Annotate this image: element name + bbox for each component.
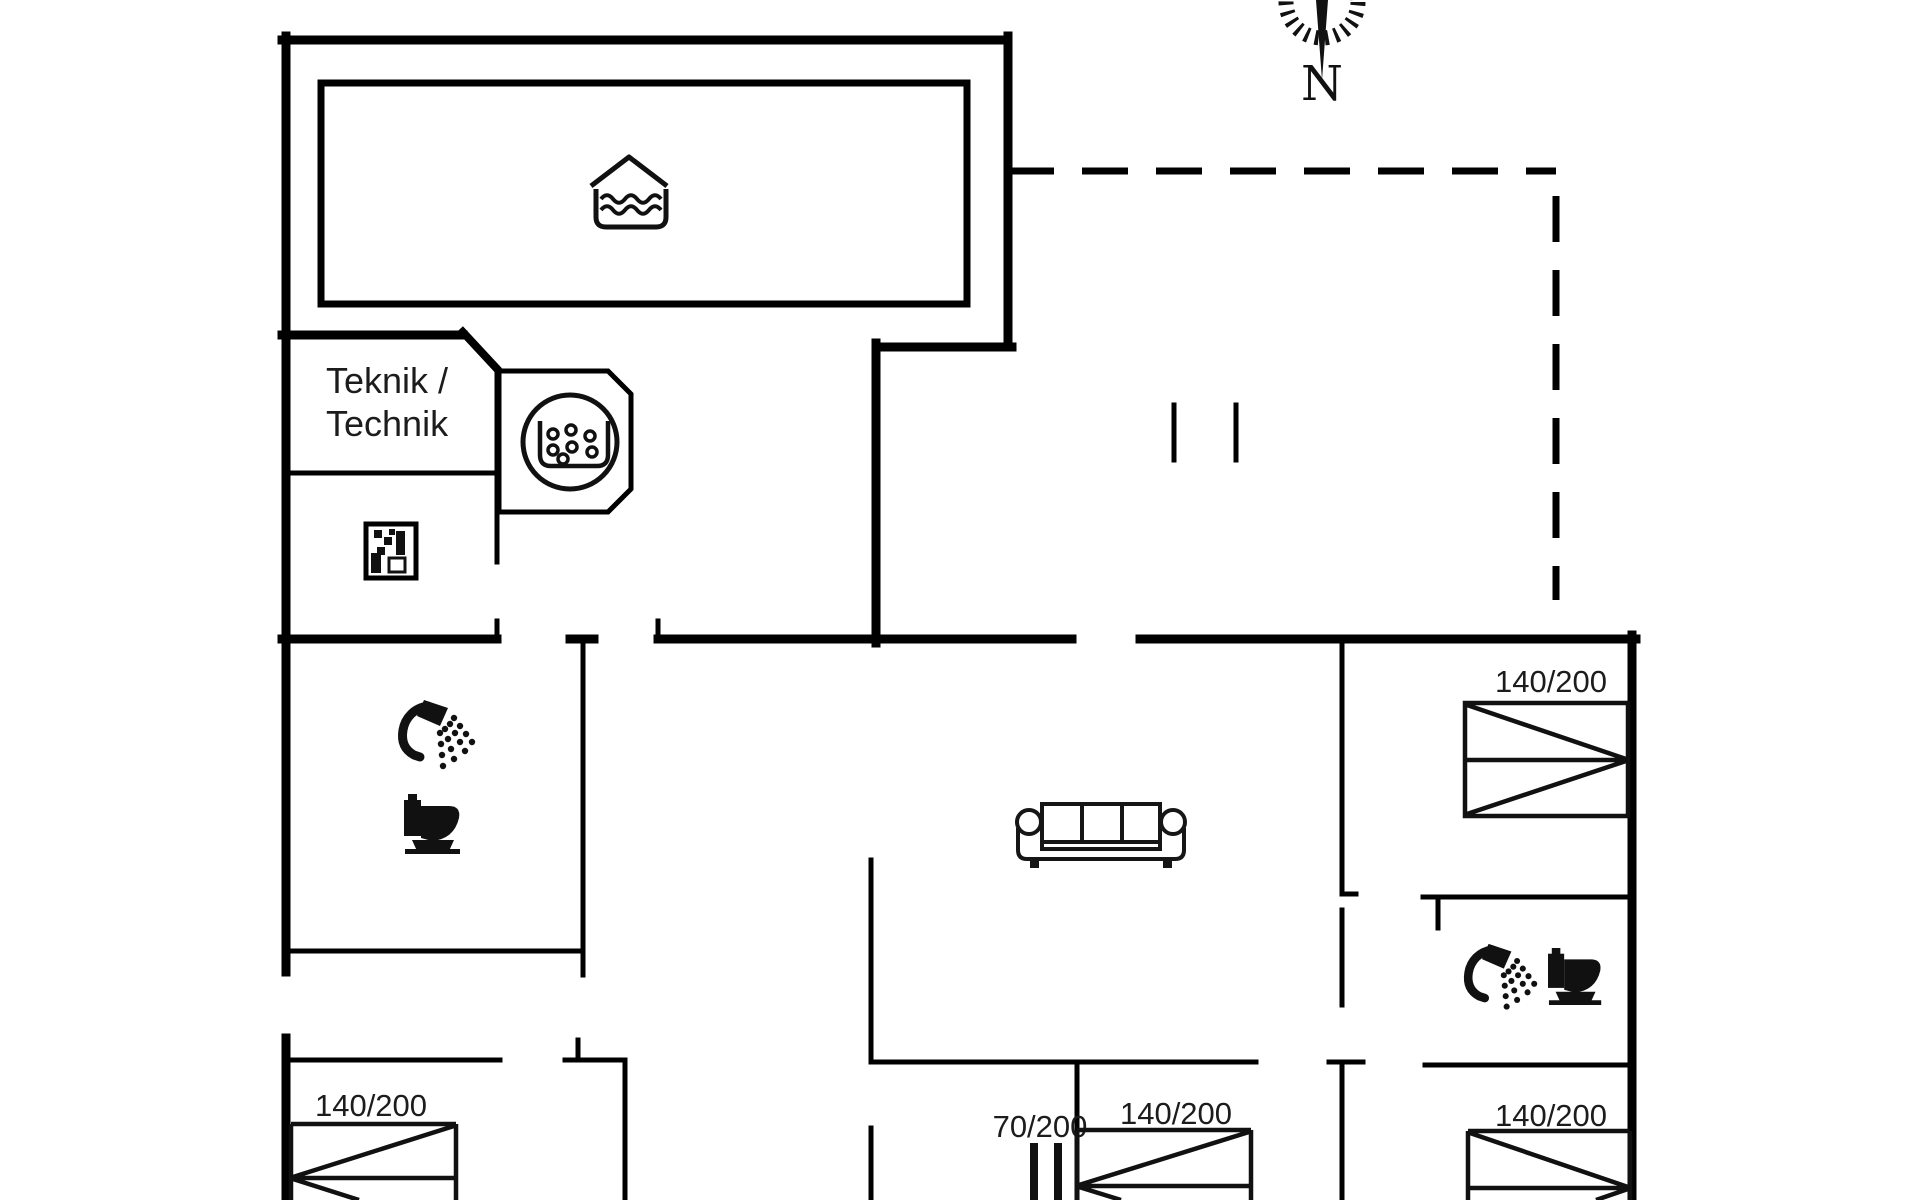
swimming-pool-basin <box>321 83 967 304</box>
terrace <box>1008 171 1556 600</box>
hot-tub-room <box>499 371 631 512</box>
pool-house-walls <box>282 36 1012 972</box>
floorplan-canvas: Teknik / Technik <box>0 0 1920 1200</box>
bed-bottom-right: 140/200 <box>1468 1098 1630 1200</box>
bed-size-label: 70/200 <box>993 1109 1088 1144</box>
shower-icon <box>1468 944 1537 1010</box>
bed-bottom-middle: 140/200 <box>1077 1096 1251 1200</box>
bed-bottom-left: 140/200 <box>291 1088 456 1200</box>
chamfer-wall <box>460 329 499 371</box>
compass-rose-icon: N <box>1286 0 1358 112</box>
pool-house <box>282 36 1012 1200</box>
terrace-step-ticks <box>1174 405 1236 460</box>
technik-label-line1: Teknik / <box>326 360 448 401</box>
compass-north-label: N <box>1301 56 1343 112</box>
floorplan-drawing: Teknik / Technik <box>0 0 1920 1200</box>
bed-size-label: 140/200 <box>1120 1096 1232 1131</box>
toilet-icon <box>404 794 460 854</box>
shower-icon <box>402 700 475 769</box>
bed-size-label: 140/200 <box>315 1088 427 1123</box>
bathroom-left <box>286 639 583 975</box>
toilet-icon <box>1548 948 1601 1005</box>
technik-label-line2: Technik <box>326 403 449 444</box>
bed-size-label: 140/200 <box>1495 1098 1607 1133</box>
living-room <box>1017 804 1185 868</box>
bed-top-right: 140/200 <box>1465 664 1628 816</box>
bathroom-right <box>1468 944 1601 1010</box>
covered-pool-icon <box>591 157 667 227</box>
main-house-walls <box>282 621 1636 1200</box>
sofa-icon <box>1017 804 1185 868</box>
bed-bottom-single: 70/200 <box>993 1109 1088 1200</box>
bed-size-label: 140/200 <box>1495 664 1607 699</box>
hot-tub-bubbles-icon <box>523 395 617 489</box>
washing-machine-icon <box>366 524 416 578</box>
terrace-dashed-boundary <box>1008 171 1556 600</box>
